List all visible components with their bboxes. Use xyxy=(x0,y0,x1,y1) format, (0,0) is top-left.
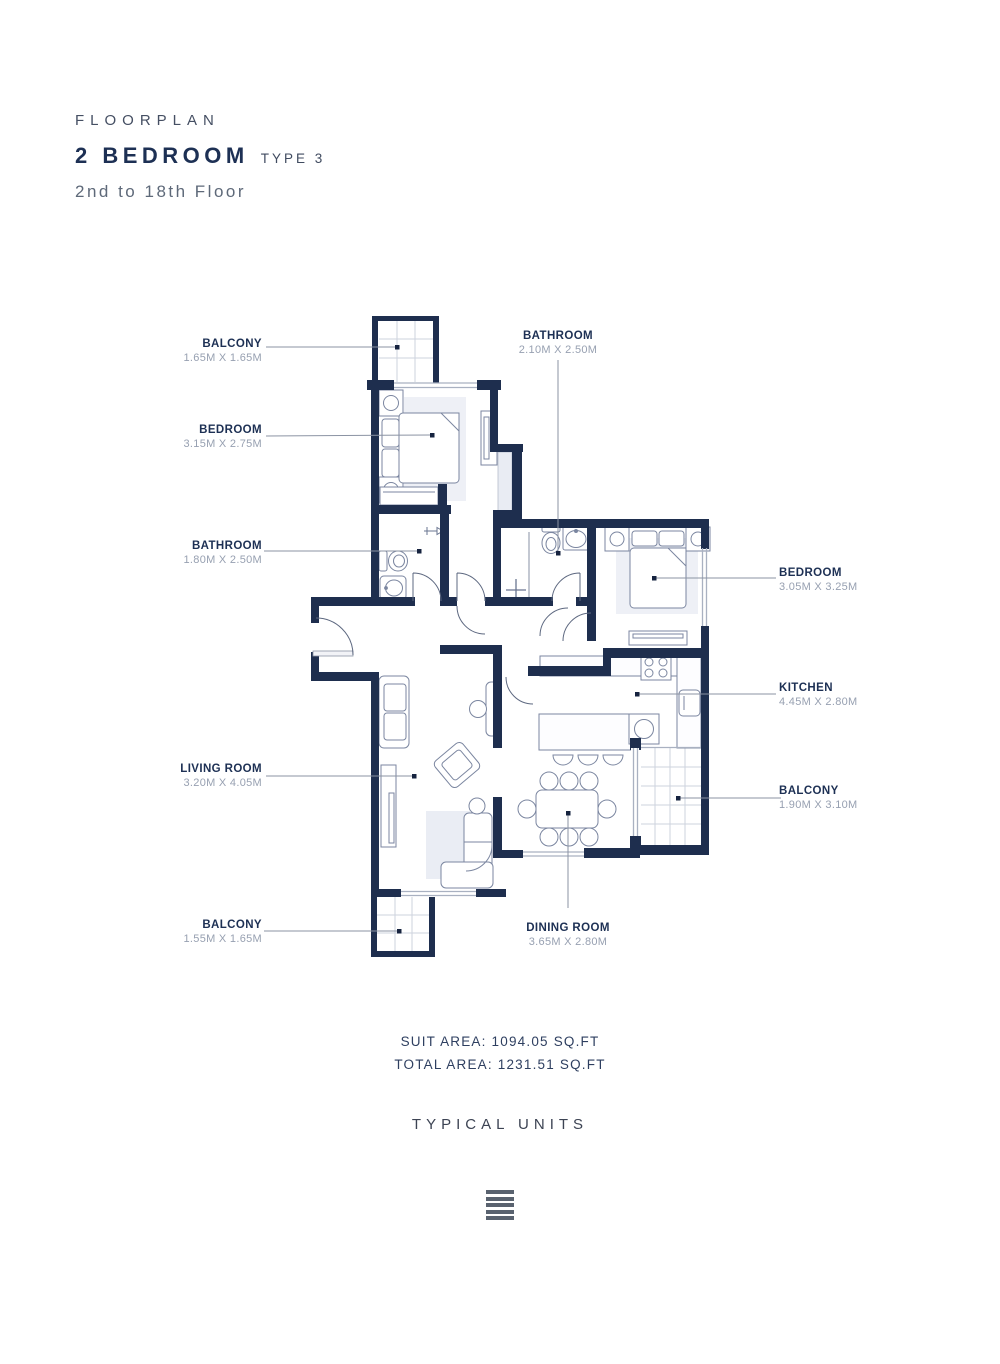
entry-door-leaf xyxy=(313,651,353,656)
shower-icon xyxy=(506,532,529,600)
floorplan-page: FLOORPLAN 2 BEDROOMTYPE 3 2nd to 18th Fl… xyxy=(0,0,1000,1364)
room-label-dining-room: DINING ROOM 3.65M X 2.80M xyxy=(488,922,648,948)
room-label-kitchen: KITCHEN 4.45M X 2.80M xyxy=(779,682,949,708)
typical-units-text: TYPICAL UNITS xyxy=(0,1116,1000,1133)
room-label-balcony-top: BALCONY 1.65M X 1.65M xyxy=(92,338,262,364)
dining-table xyxy=(536,790,598,828)
room-label-bedroom-2: BEDROOM 3.05M X 3.25M xyxy=(779,567,949,593)
sink-icon-bathroom-2 xyxy=(563,526,590,550)
room-label-bedroom-1: BEDROOM 3.15M X 2.75M xyxy=(92,424,262,450)
total-area-text: TOTAL AREA: 1231.51 SQ.FT xyxy=(0,1057,1000,1072)
toilet-icon-bathroom-1 xyxy=(379,551,408,571)
room-label-bathroom-top: BATHROOM 2.10M X 2.50M xyxy=(478,330,638,356)
room-label-balcony-bottom: BALCONY 1.55M X 1.65M xyxy=(92,919,262,945)
tv-unit-icon xyxy=(381,765,396,847)
sink-icon-bathroom-1 xyxy=(380,576,406,600)
bar-stools xyxy=(553,755,623,765)
door-arcs xyxy=(316,573,591,704)
sofa-icon xyxy=(379,676,409,748)
toilet-icon-bathroom-2 xyxy=(542,525,560,554)
room-label-bathroom-1: BATHROOM 1.80M X 2.50M xyxy=(92,540,262,566)
closet-bedroom-1 xyxy=(380,487,438,505)
stacked-bars-logo-icon xyxy=(486,1190,514,1223)
side-table-icon xyxy=(469,798,485,814)
room-label-living-room: LIVING ROOM 3.20M X 4.05M xyxy=(92,763,262,789)
suit-area-text: SUIT AREA: 1094.05 SQ.FT xyxy=(0,1034,1000,1049)
armchair-icon xyxy=(432,740,481,789)
room-label-balcony-right: BALCONY 1.90M X 3.10M xyxy=(779,785,949,811)
